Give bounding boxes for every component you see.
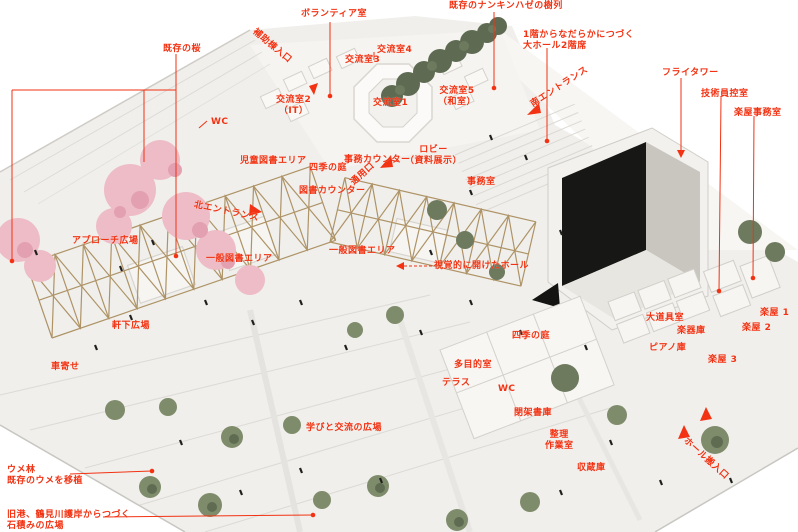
label-terrace: テラス xyxy=(442,378,470,389)
label-ume-grove: ウメ林 既存のウメを移植 xyxy=(7,465,83,488)
label-koryu-room-3: 交流室3 xyxy=(345,55,380,66)
label-fly-tower: フライタワー xyxy=(662,68,719,79)
label-koryu-room-5: 交流室5 （和室） xyxy=(438,86,476,109)
label-office: 事務室 xyxy=(467,177,496,188)
label-book-counter: 図書カウンター xyxy=(299,186,366,197)
label-car-dropoff: 車寄せ xyxy=(51,362,80,373)
label-children-book-area: 児童図書エリア xyxy=(240,156,307,167)
label-koryu-room-4: 交流室4 xyxy=(377,45,412,56)
label-repository: 収蔵庫 xyxy=(577,463,606,474)
arrow-fly-tower xyxy=(677,150,685,158)
label-gakuya-2: 楽屋 2 xyxy=(742,323,771,334)
label-visually-open-hall: 視覚的に開けたホール xyxy=(434,261,529,272)
label-gakuya-3: 楽屋 3 xyxy=(708,355,737,366)
label-lobby: ロビー （資料展示） xyxy=(405,145,462,168)
label-four-seasons-garden-2: 四季の庭 xyxy=(512,331,550,342)
label-wc-1: WC xyxy=(211,117,229,128)
label-wc-2: WC xyxy=(498,384,516,395)
label-tech-staff-room: 技術員控室 xyxy=(701,89,749,100)
arrow-hall-loading-1 xyxy=(700,407,712,421)
label-hall-2f-seats: 1階からなだらかにつづく 大ホール2階席 xyxy=(523,30,634,53)
label-gakuya-1: 楽屋 1 xyxy=(760,308,789,319)
arrow-visual-hall xyxy=(396,262,404,270)
label-piano-storage: ピアノ庫 xyxy=(649,343,686,354)
label-multipurpose-room: 多目的室 xyxy=(454,360,492,371)
label-under-eaves-plaza: 軒下広場 xyxy=(112,321,150,332)
annotated-model-photo: 既存の桜 ボランティア室 補助棟入口 既存のナンキンハゼの樹列 交流室4 交流室… xyxy=(0,0,798,532)
label-existing-cherry: 既存の桜 xyxy=(163,44,201,55)
arrow-aux-entrance xyxy=(309,83,318,95)
annotation-lines xyxy=(0,0,798,532)
label-closed-stacks: 閉架書庫 xyxy=(514,408,552,419)
label-gakuya-office: 楽屋事務室 xyxy=(734,108,782,119)
label-general-book-area-right: 一般図書エリア xyxy=(329,246,396,257)
label-four-seasons-garden-1: 四季の庭 xyxy=(309,163,347,174)
label-learning-exchange-plaza: 学びと交流の広場 xyxy=(306,423,382,434)
label-general-book-area-left: 一般図書エリア xyxy=(206,254,273,265)
label-instrument-storage: 楽器庫 xyxy=(677,326,706,337)
label-props-room: 大道具室 xyxy=(646,313,684,324)
label-office-counter: 事務カウンター xyxy=(344,155,411,166)
label-volunteer-room: ボランティア室 xyxy=(301,9,367,20)
label-nankin-tree-row: 既存のナンキンハゼの樹列 xyxy=(449,1,563,12)
label-koryu-room-2: 交流室2 （IT） xyxy=(276,95,311,118)
label-stone-plaza: 旧港、鶴見川護岸からつづく 石積みの広場 xyxy=(7,510,131,532)
label-koryu-room-1: 交流室1 xyxy=(373,98,408,109)
label-sorting-workroom: 整理 作業室 xyxy=(545,430,574,453)
label-approach-plaza: アプローチ広場 xyxy=(72,236,139,247)
